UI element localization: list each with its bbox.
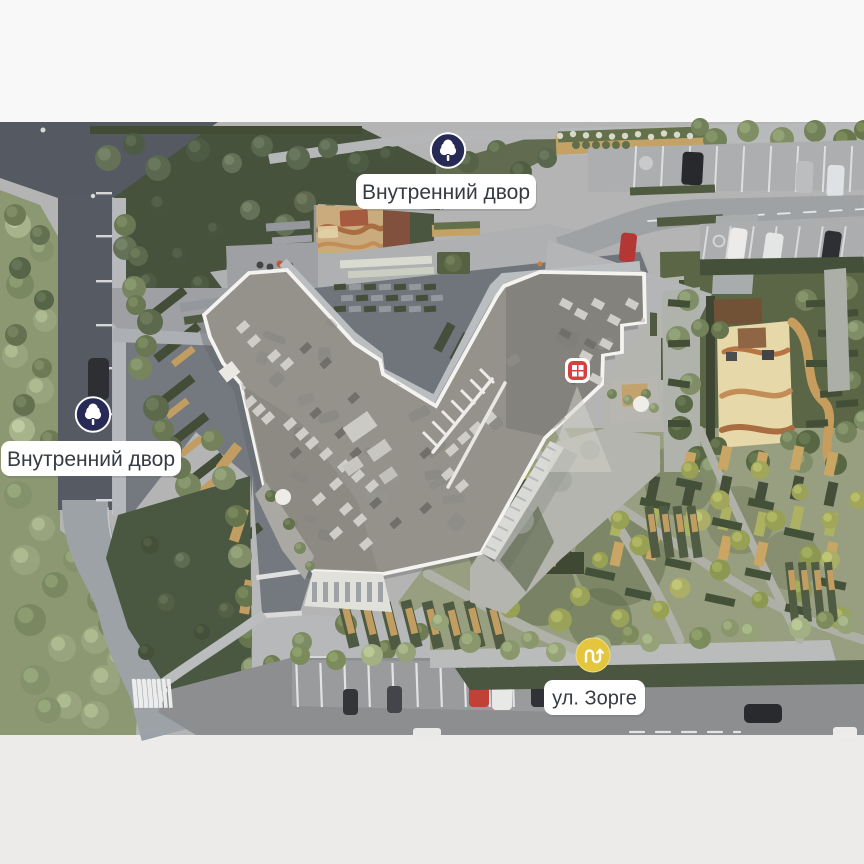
svg-text:Внутренний двор: Внутренний двор bbox=[362, 181, 530, 204]
svg-text:Внутренний двор: Внутренний двор bbox=[7, 448, 175, 471]
svg-text:ул. Зорге: ул. Зорге bbox=[552, 688, 637, 710]
